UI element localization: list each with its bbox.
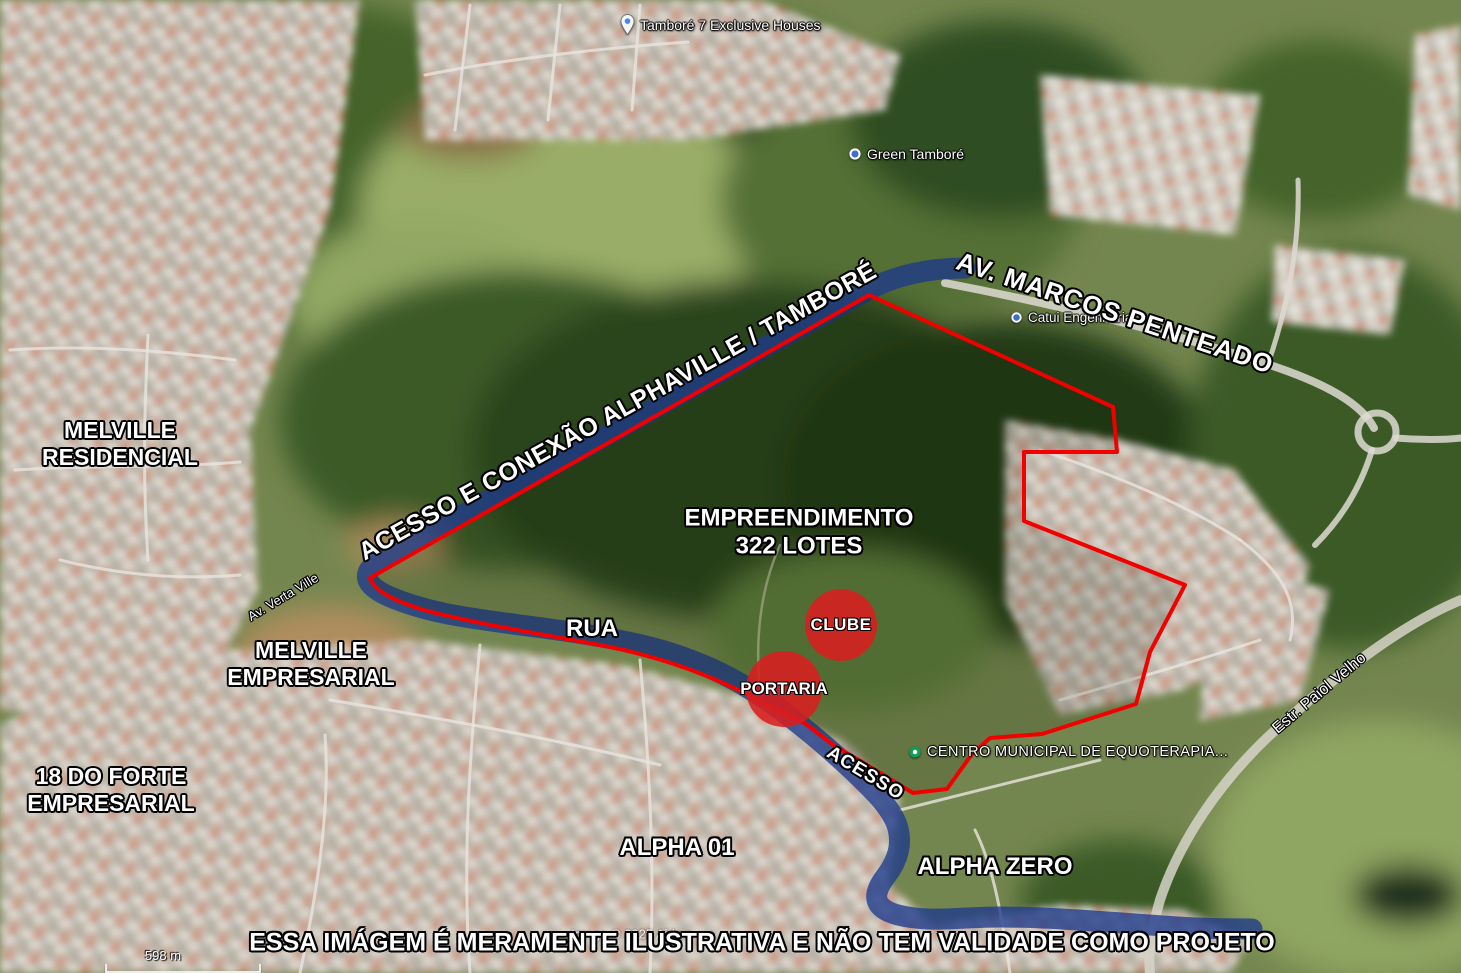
place-tambore7[interactable]: Tamboré 7 Exclusive Houses [620, 14, 821, 35]
district-label-alpha-01: ALPHA 01 [619, 834, 734, 862]
district-label-alpha-zero: ALPHA ZERO [917, 853, 1072, 881]
place-dot-icon [1010, 311, 1023, 324]
place-equoterapia[interactable]: CENTRO MUNICIPAL DE EQUOTERAPIA... [908, 744, 1228, 760]
development-label: EMPREENDIMENTO 322 LOTES [685, 505, 914, 562]
disclaimer-label: ESSA IMÁGEM É MERAMENTE ILUSTRATIVA E NÃ… [249, 928, 1275, 958]
portaria-label: PORTARIA [740, 679, 828, 699]
scale-text: 598 m [115, 948, 211, 963]
rua-label: RUA [566, 615, 618, 643]
scale-line [105, 964, 261, 973]
place-dot-icon-green [908, 745, 922, 759]
map-pin-icon [620, 14, 635, 35]
district-label-melville-residencial: MELVILLE RESIDENCIAL [42, 417, 198, 471]
satellite-map-view[interactable]: Tamboré 7 Exclusive Houses Green Tamboré… [0, 0, 1461, 973]
place-green-tambore[interactable]: Green Tamboré [848, 146, 964, 162]
satellite-imagery [0, 0, 1461, 973]
place-dot-icon [848, 147, 862, 161]
district-label-18-do-forte: 18 DO FORTE EMPRESARIAL [27, 763, 194, 817]
clube-label: CLUBE [810, 615, 871, 635]
scale-bar: 598 m [105, 948, 261, 973]
district-label-melville-empresarial: MELVILLE EMPRESARIAL [227, 637, 394, 691]
